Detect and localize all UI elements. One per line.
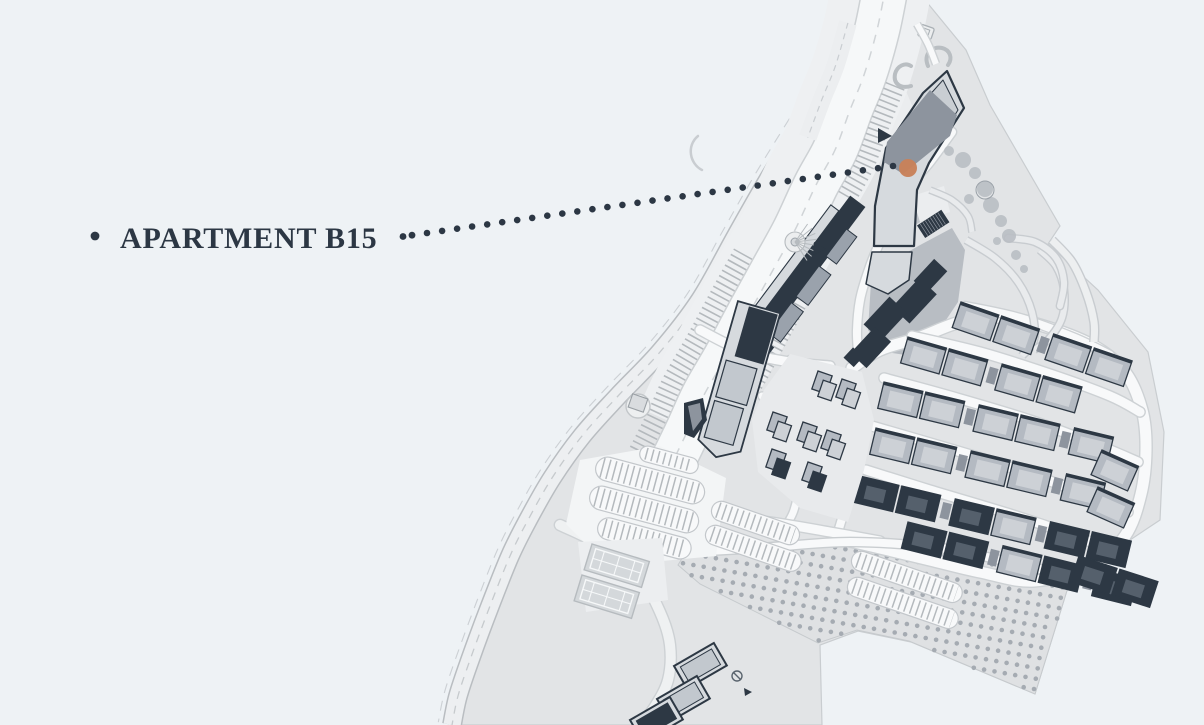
svg-text:APARTMENT B15: APARTMENT B15	[120, 222, 377, 255]
